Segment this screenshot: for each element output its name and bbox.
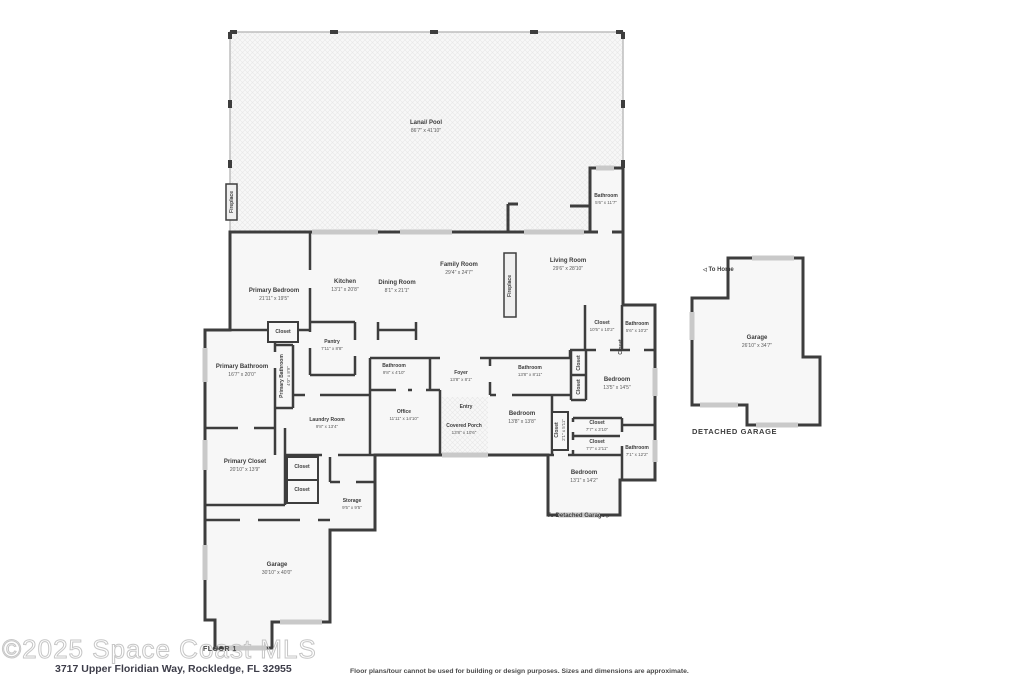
room-name: Closet: [586, 439, 608, 446]
room-name: Primary Closet: [224, 459, 266, 467]
room-dims: 4'0" x 8'9": [285, 354, 291, 398]
room-dims: 30'10" x 40'0": [262, 570, 292, 577]
room-dims: 13'1" x 20'8": [331, 287, 358, 294]
room-name: Bathroom: [594, 193, 618, 200]
room-dims: 2'1" x 5'11": [560, 419, 566, 441]
room-label: Closet10'5" x 10'2": [590, 320, 615, 332]
disclaimer-text: Floor plans/tour cannot be used for buil…: [350, 668, 689, 675]
room-name: Kitchen: [331, 279, 358, 287]
room-label: Garage30'10" x 40'0": [262, 562, 292, 576]
room-dims: 5'6" x 11'7": [594, 199, 618, 205]
room-dims: 7'7" x 3'10": [586, 426, 608, 432]
room-name: Closet: [294, 464, 309, 471]
room-label: Dining Room8'1" x 21'1": [378, 280, 415, 294]
room-labels-layer: Lanai/ Pool86'7" x 41'10"FireplaceBathro…: [0, 0, 1024, 683]
room-dims: 10'5" x 10'2": [590, 326, 615, 332]
room-name: Garage: [742, 335, 772, 343]
room-label: Closet: [294, 464, 309, 471]
room-label: Closet: [618, 339, 625, 354]
room-label: Bathroom5'6" x 11'7": [594, 193, 618, 205]
room-dims: 8'1" x 21'1": [378, 288, 415, 295]
room-name: Living Room: [550, 258, 586, 266]
room-name: Foyer: [450, 370, 472, 377]
room-name: Bathroom: [625, 445, 649, 452]
room-name: Closet: [275, 329, 290, 336]
room-label: Bedroom13'5" x 14'5": [603, 377, 630, 391]
room-dims: 20'10" x 13'9": [224, 467, 266, 474]
room-label: Closet7'7" x 3'10": [586, 420, 608, 432]
room-name: Pantry: [321, 339, 343, 346]
room-dims: 13'8" x 8'1": [450, 376, 472, 382]
room-name: Bathroom: [518, 365, 542, 372]
room-name: Entry: [460, 404, 473, 411]
room-dims: 13'8" x 10'6": [446, 429, 482, 435]
room-label: Kitchen13'1" x 20'8": [331, 279, 358, 293]
watermark: ©2025 Space Coast MLS: [2, 634, 317, 665]
room-label: Laundry Room9'8" x 13'4": [309, 417, 344, 429]
room-name: Office: [389, 409, 418, 416]
room-label: Closet: [576, 379, 583, 394]
room-dims: 13'8" x 13'8": [508, 419, 535, 426]
room-dims: 9'8" x 13'4": [309, 423, 344, 429]
arrow-left-icon: ◁: [703, 267, 707, 273]
room-name: Closet: [586, 420, 608, 427]
to-home-text: To Home: [709, 267, 734, 273]
room-dims: 86'7" x 41'10": [410, 128, 442, 135]
room-label: Primary Bathroom4'0" x 8'9": [279, 354, 291, 398]
room-name: Closet: [590, 320, 615, 327]
detached-garage-caption: DETACHED GARAGE: [692, 427, 777, 436]
room-label: Foyer13'8" x 8'1": [450, 370, 472, 382]
room-label: Living Room29'6" x 28'10": [550, 258, 586, 272]
room-label: Closet: [576, 355, 583, 370]
room-label: Bathroom5'6" x 10'2": [625, 321, 649, 333]
room-name: Garage: [262, 562, 292, 570]
room-name: Family Room: [440, 262, 478, 270]
room-label: Primary Bedroom21'11" x 19'5": [249, 288, 299, 302]
room-name: Storage: [342, 498, 362, 505]
room-dims: 16'7" x 20'0": [216, 372, 268, 379]
room-label: Closet2'1" x 5'11": [554, 419, 566, 441]
room-label: Pantry7'11" x 8'8": [321, 339, 343, 351]
room-name: Bathroom: [625, 321, 649, 328]
address-text: 3717 Upper Floridian Way, Rockledge, FL …: [55, 663, 292, 675]
room-label: Bathroom13'8" x 8'11": [518, 365, 542, 377]
room-label: Office11'11" x 14'10": [389, 409, 418, 421]
room-name: Fireplace: [229, 191, 236, 213]
to-detached-garage-label: To Detached Garage ▷: [547, 513, 610, 519]
room-dims: 21'11" x 19'5": [249, 296, 299, 303]
room-dims: 13'1" x 14'2": [570, 478, 597, 485]
arrow-right-icon: ▷: [607, 513, 611, 519]
room-label: Closet7'7" x 2'11": [586, 439, 608, 451]
room-dims: 9'8" x 4'10": [382, 369, 406, 375]
room-name: Bedroom: [508, 411, 535, 419]
room-name: Closet: [554, 419, 561, 441]
to-home-label: ◁ To Home: [703, 267, 734, 273]
room-dims: 13'8" x 8'11": [518, 371, 542, 377]
room-dims: 29'4" x 24'7": [440, 270, 478, 277]
room-name: Primary Bedroom: [249, 288, 299, 296]
room-name: Lanai/ Pool: [410, 120, 442, 128]
room-name: Bathroom: [382, 363, 406, 370]
room-name: Dining Room: [378, 280, 415, 288]
floor-label: FLOOR 1: [203, 646, 237, 653]
room-name: Laundry Room: [309, 417, 344, 424]
room-name: Primary Bathroom: [216, 364, 268, 372]
room-dims: 7'1" x 12'2": [625, 451, 649, 457]
room-name: Closet: [576, 355, 583, 370]
room-label: Bathroom7'1" x 12'2": [625, 445, 649, 457]
room-label: Covered Porch13'8" x 10'6": [446, 423, 482, 435]
room-label: Primary Bathroom16'7" x 20'0": [216, 364, 268, 378]
room-dims: 7'11" x 8'8": [321, 345, 343, 351]
room-label: Primary Closet20'10" x 13'9": [224, 459, 266, 473]
room-label: Bedroom13'1" x 14'2": [570, 470, 597, 484]
to-detached-garage-text: To Detached Garage: [547, 513, 605, 519]
room-label: Family Room29'4" x 24'7": [440, 262, 478, 276]
room-label: Bathroom9'8" x 4'10": [382, 363, 406, 375]
room-dims: 7'7" x 2'11": [586, 445, 608, 451]
room-label: Garage26'10" x 34'7": [742, 335, 772, 349]
room-name: Fireplace: [507, 275, 514, 297]
room-label: Fireplace: [507, 275, 514, 297]
room-label: Lanai/ Pool86'7" x 41'10": [410, 120, 442, 134]
room-name: Primary Bathroom: [279, 354, 286, 398]
room-name: Bedroom: [603, 377, 630, 385]
room-dims: 13'5" x 14'5": [603, 385, 630, 392]
room-dims: 5'6" x 10'2": [625, 327, 649, 333]
room-label: Bedroom13'8" x 13'8": [508, 411, 535, 425]
room-name: Closet: [294, 487, 309, 494]
room-dims: 11'11" x 14'10": [389, 415, 418, 421]
room-label: Fireplace: [229, 191, 236, 213]
room-dims: 26'10" x 34'7": [742, 343, 772, 350]
room-label: Closet: [294, 487, 309, 494]
room-label: Storage9'5" x 9'5": [342, 498, 362, 510]
room-name: Closet: [576, 379, 583, 394]
floorplan-canvas: Lanai/ Pool86'7" x 41'10"FireplaceBathro…: [0, 0, 1024, 683]
room-dims: 9'5" x 9'5": [342, 504, 362, 510]
room-label: Entry: [460, 404, 473, 411]
room-dims: 29'6" x 28'10": [550, 266, 586, 273]
room-name: Bedroom: [570, 470, 597, 478]
room-name: Covered Porch: [446, 423, 482, 430]
room-label: Closet: [275, 329, 290, 336]
room-name: Closet: [618, 339, 625, 354]
